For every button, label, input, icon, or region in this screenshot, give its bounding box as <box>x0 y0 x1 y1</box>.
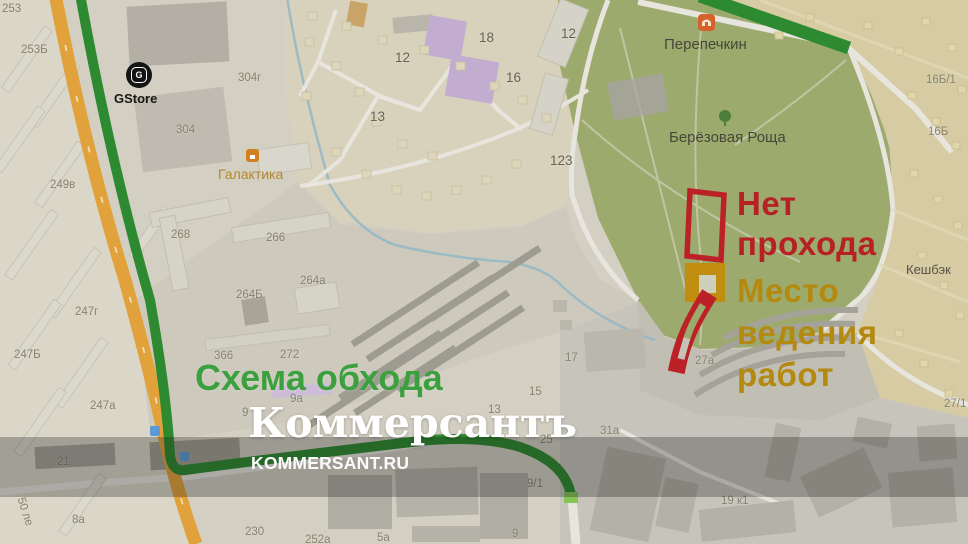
map-label: 16 <box>506 70 521 85</box>
map-label: 123 <box>550 153 573 168</box>
map-label: 253 <box>2 3 21 15</box>
bypass-title: Схема обхода <box>195 357 443 399</box>
map-label: 253Б <box>21 44 48 56</box>
work-site-caption: Место ведения работ <box>737 270 877 396</box>
park-tree-icon <box>718 110 732 126</box>
galaktika-mall-icon <box>246 149 260 163</box>
map-label: 247а <box>90 400 116 412</box>
map-label: 9 <box>512 528 518 540</box>
map-label: 304 <box>176 124 195 136</box>
map-label: 5а <box>377 532 390 544</box>
map-label: 16Б/1 <box>926 74 956 86</box>
map-label: 17 <box>565 352 578 364</box>
map-label: 18 <box>479 30 494 45</box>
map-label: 12 <box>561 26 576 41</box>
berezovaya-roscha-label: Берёзовая Роща <box>669 129 786 146</box>
map-label: 12 <box>395 50 410 65</box>
keshbek-label: Кешбэк <box>906 262 951 277</box>
gstore-icon: G <box>126 62 152 88</box>
map-label: 13 <box>370 109 385 124</box>
map-label: 27а <box>695 355 714 367</box>
map-label: 264Б <box>236 289 263 301</box>
map-label: 247г <box>75 306 98 318</box>
map-label: 27/1 <box>944 398 966 410</box>
kommersant-logo: Коммерсантъ <box>248 399 577 447</box>
galaktika-label: Галактика <box>218 166 283 182</box>
map-label: 247Б <box>14 349 41 361</box>
kommersant-url: KOMMERSANT.RU <box>251 453 409 474</box>
map-label: 252а <box>305 534 331 544</box>
perepechkin-poi-icon <box>698 14 716 32</box>
gstore-logo-g: G <box>131 67 147 83</box>
map-label: 31а <box>600 425 619 437</box>
map-label: 230 <box>245 526 264 538</box>
no-passage-caption: Нет прохода <box>737 184 876 264</box>
map-label: 15 <box>529 386 542 398</box>
map-label: 268 <box>171 229 190 241</box>
map-image: G GStore Галактика Перепечкин Берёзовая … <box>0 0 968 544</box>
gstore-label: GStore <box>114 91 157 106</box>
map-label: 8а <box>72 514 85 526</box>
map-label: 16Б <box>928 126 948 138</box>
map-label: 266 <box>266 232 285 244</box>
perepechkin-label: Перепечкин <box>664 36 747 53</box>
map-label: 249в <box>50 179 75 191</box>
map-label: 304г <box>238 72 261 84</box>
map-label: 264а <box>300 275 326 287</box>
